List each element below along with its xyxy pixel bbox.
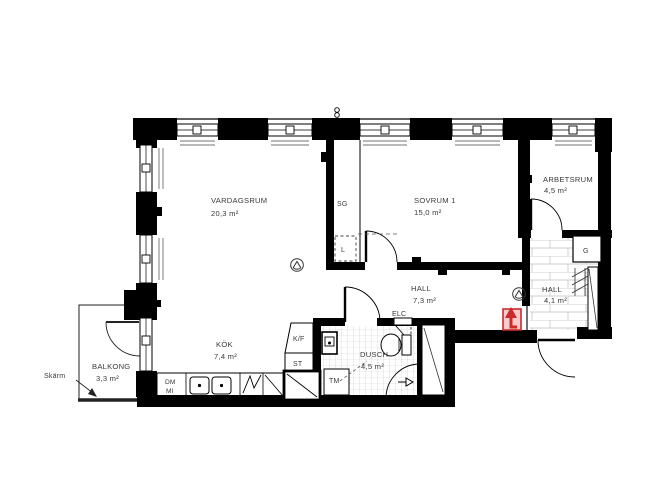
elc-cabinet-box xyxy=(394,318,412,325)
window xyxy=(140,145,163,192)
window xyxy=(177,124,218,145)
study-door xyxy=(531,199,562,230)
floor-plan-drawing: VARDAGSRUM 20,3 m² SOVRUM 1 15,0 m² ARBE… xyxy=(0,0,670,483)
room-label-vardagsrum: VARDAGSRUM xyxy=(211,196,267,205)
l-closet-box xyxy=(335,236,356,261)
bedroom-door xyxy=(366,231,397,262)
window xyxy=(268,124,312,145)
window xyxy=(452,124,503,145)
window xyxy=(552,124,595,145)
room-area-hall-inre: 7,3 m² xyxy=(413,296,436,305)
smoke-detector-livingroom xyxy=(291,259,304,272)
right-wall xyxy=(598,122,611,337)
window xyxy=(360,124,410,145)
balcony-door-swing xyxy=(106,322,140,356)
window xyxy=(140,235,163,283)
tiled-floors xyxy=(321,238,598,395)
room-area-hall-entre: 4,1 m² xyxy=(544,296,567,305)
room-area-dusch: 4,5 m² xyxy=(361,362,384,371)
room-area-kok: 7,4 m² xyxy=(214,352,237,361)
room-label-hall-inre: HALL xyxy=(411,284,431,293)
room-area-vardagsrum: 20,3 m² xyxy=(211,209,239,218)
label-microwave: MI xyxy=(166,388,174,395)
facade-windows-left xyxy=(140,145,163,371)
room-label-balkong: BALKONG xyxy=(92,362,130,371)
section-marker xyxy=(335,108,340,118)
label-elc: ELC xyxy=(392,311,406,318)
livingroom-bedroom-wall xyxy=(326,135,334,270)
room-area-balkong: 3,3 m² xyxy=(96,374,119,383)
room-label-sovrum1: SOVRUM 1 xyxy=(414,196,456,205)
shower-room-door xyxy=(345,287,380,322)
label-dishwasher: DM xyxy=(165,379,175,386)
room-area-arbetsrum: 4,5 m² xyxy=(544,186,567,195)
skarm-arrow xyxy=(88,388,97,397)
entrance-door xyxy=(538,340,575,377)
room-label-kok: KÖK xyxy=(216,340,233,349)
hall-divider-wall xyxy=(522,238,530,306)
range-symbol xyxy=(243,375,261,393)
label-l-closet: L xyxy=(341,247,345,254)
room-label-arbetsrum: ARBETSRUM xyxy=(543,175,593,184)
balcony-door-frame xyxy=(140,318,152,371)
room-label-dusch: DUSCH xyxy=(360,350,388,359)
label-washing-machine: TM xyxy=(329,378,340,385)
label-g-closet: G xyxy=(583,248,589,255)
entry-arrow xyxy=(503,307,521,330)
room-area-sovrum1: 15,0 m² xyxy=(414,208,442,217)
label-cleaning-closet: ST xyxy=(293,361,303,368)
label-sg-closet: SG xyxy=(337,201,348,208)
floor-plan-canvas: VARDAGSRUM 20,3 m² SOVRUM 1 15,0 m² ARBE… xyxy=(0,0,670,483)
label-skarm: Skärm xyxy=(44,373,65,380)
label-fridge-freezer: K/F xyxy=(293,336,305,343)
room-label-hall-entre: HALL xyxy=(542,285,562,294)
